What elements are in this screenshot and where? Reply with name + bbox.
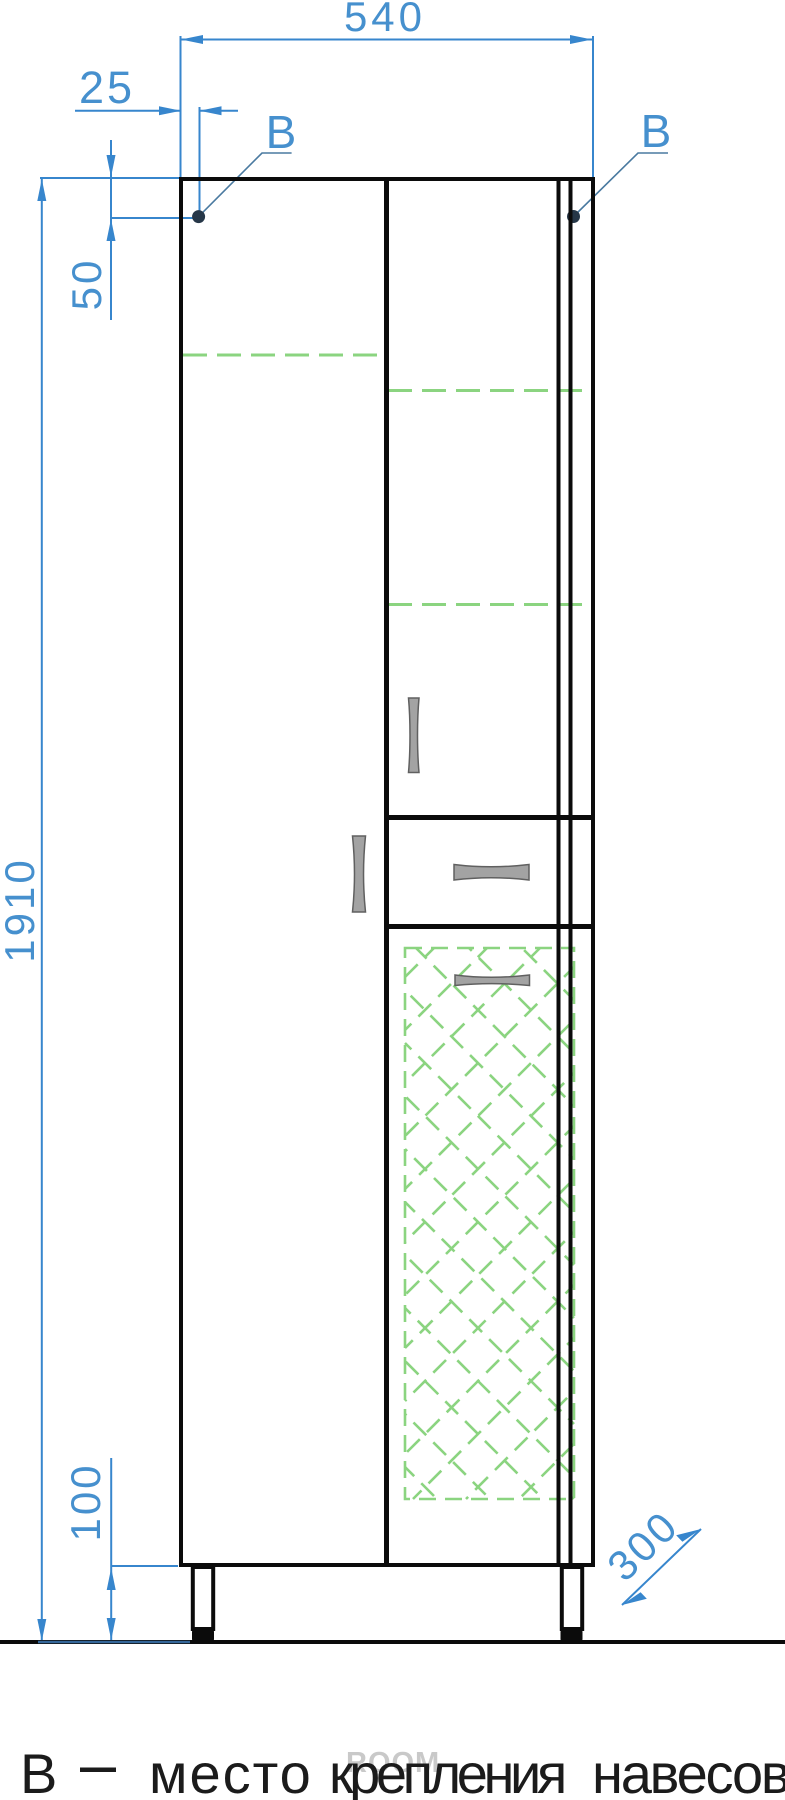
- svg-text:50: 50: [63, 258, 110, 311]
- svg-text:100: 100: [62, 1462, 109, 1541]
- svg-text:B: B: [266, 106, 297, 158]
- svg-text:крепления: крепления: [329, 1742, 564, 1800]
- svg-text:место: место: [149, 1742, 313, 1800]
- svg-text:В: В: [20, 1742, 57, 1800]
- svg-text:1910: 1910: [0, 857, 43, 962]
- svg-text:25: 25: [79, 62, 135, 113]
- svg-text:навесов: навесов: [592, 1742, 785, 1800]
- svg-text:540: 540: [344, 0, 426, 40]
- svg-text:B: B: [641, 105, 672, 157]
